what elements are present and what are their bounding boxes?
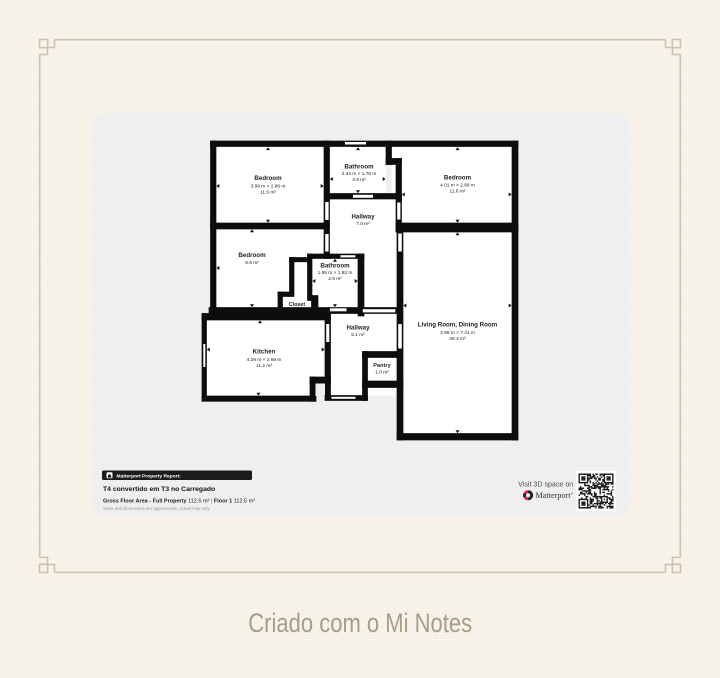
svg-text:3.99 m × 2.86 m: 3.99 m × 2.86 m	[251, 184, 286, 190]
svg-text:Visit 3D space on: Visit 3D space on	[518, 481, 573, 489]
svg-text:Hallway: Hallway	[346, 325, 370, 332]
svg-text:Matterport Property Report:: Matterport Property Report:	[117, 474, 182, 480]
svg-text:Bathroom: Bathroom	[344, 164, 374, 171]
svg-text:Pantry: Pantry	[373, 363, 391, 369]
svg-text:8.8 m²: 8.8 m²	[245, 260, 259, 266]
svg-text:Sizes and dimensions are appro: Sizes and dimensions are approximate, ac…	[103, 506, 210, 511]
svg-text:Gross Floor Area - Full Proper: Gross Floor Area - Full Property 112.5 m…	[103, 498, 255, 504]
svg-text:3.96 m × 7.41 m: 3.96 m × 7.41 m	[440, 330, 475, 336]
svg-text:Hallway: Hallway	[351, 214, 375, 221]
svg-text:11.5 m²: 11.5 m²	[260, 190, 276, 196]
svg-text:4.01 m × 2.89 m: 4.01 m × 2.89 m	[440, 183, 475, 189]
svg-text:11.8 m²: 11.8 m²	[450, 189, 466, 195]
svg-text:Bedroom: Bedroom	[238, 252, 266, 259]
svg-text:1.0 m²: 1.0 m²	[375, 370, 389, 376]
svg-text:Kitchen: Kitchen	[253, 349, 276, 356]
svg-text:Bathroom: Bathroom	[320, 263, 350, 270]
svg-text:Bedroom: Bedroom	[254, 175, 282, 182]
svg-text:3.9 m²: 3.9 m²	[352, 177, 366, 183]
svg-text:Bedroom: Bedroom	[444, 175, 472, 182]
svg-text:4.29 m × 2.69 m: 4.29 m × 2.69 m	[247, 357, 282, 363]
svg-text:2.9 m²: 2.9 m²	[328, 276, 342, 282]
svg-text:11.2 m²: 11.2 m²	[256, 363, 272, 369]
svg-text:1.95 m × 1.82 m: 1.95 m × 1.82 m	[318, 270, 353, 276]
svg-text:5.1 m²: 5.1 m²	[351, 332, 365, 338]
svg-text:Matterport’: Matterport’	[536, 491, 574, 500]
svg-text:Closet: Closet	[289, 302, 305, 308]
svg-text:29.3 m²: 29.3 m²	[449, 336, 466, 342]
svg-text:7.0 m²: 7.0 m²	[356, 221, 370, 227]
svg-text:T4 convertido em T3 no Carrega: T4 convertido em T3 no Carregado	[103, 486, 215, 493]
svg-text:Living Room, Dining Room: Living Room, Dining Room	[418, 322, 498, 329]
svg-text:2.34 m × 1.76 m: 2.34 m × 1.76 m	[342, 171, 377, 177]
